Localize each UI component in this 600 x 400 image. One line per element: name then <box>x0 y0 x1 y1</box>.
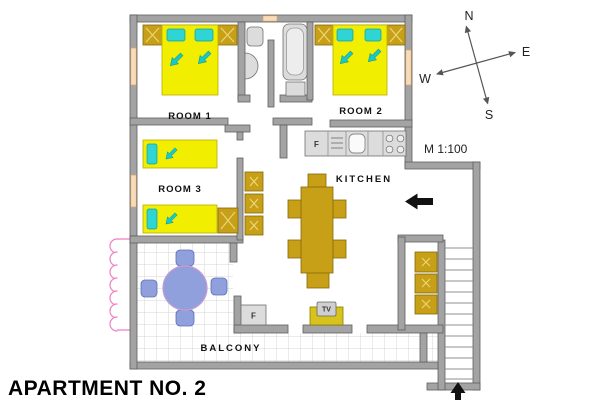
chair <box>288 200 302 218</box>
compass-e-label: E <box>522 45 530 59</box>
washing-machine <box>286 82 305 96</box>
compass-north-tip <box>465 26 471 34</box>
floor-plan-page: F F TV N <box>0 0 600 400</box>
freezer-unit: F <box>241 305 266 325</box>
toilet <box>247 27 263 46</box>
compass-rose: N E S W <box>419 9 530 122</box>
freezer-label: F <box>251 312 256 321</box>
balcony-label: BALCONY <box>201 343 262 354</box>
kitchen-counter: F <box>305 131 406 156</box>
tv-label: TV <box>322 307 331 314</box>
compass-s-label: S <box>485 108 493 122</box>
fridge-label: F <box>314 140 319 149</box>
pillow <box>147 144 157 164</box>
window-left-room3 <box>131 175 136 207</box>
pillow <box>365 29 381 41</box>
room3-label: ROOM 3 <box>158 184 201 195</box>
pillow <box>195 29 213 41</box>
chair <box>307 272 329 288</box>
kitchen-label: KITCHEN <box>336 174 392 185</box>
bathroom-fixtures <box>245 24 307 96</box>
staircase <box>445 248 473 379</box>
dining-table-set <box>288 174 346 288</box>
balcony-chair <box>141 280 157 297</box>
pillow <box>147 209 157 229</box>
scale-label: M 1:100 <box>424 142 468 156</box>
room2-label: ROOM 2 <box>339 106 382 117</box>
window-top-bathroom <box>263 16 277 21</box>
floor-plan: F F TV N <box>0 0 600 400</box>
balcony-chair <box>211 278 227 295</box>
balcony-chair <box>176 250 194 266</box>
entry-cabinets <box>415 252 437 314</box>
room2-double-bed <box>315 25 405 95</box>
chair <box>332 240 346 258</box>
dining-table <box>301 187 333 273</box>
compass-n-label: N <box>464 9 473 23</box>
pillow <box>337 29 353 41</box>
chair <box>332 200 346 218</box>
tv-unit: TV <box>310 302 343 325</box>
balcony-chair <box>176 310 194 326</box>
window-left-room1 <box>131 48 136 85</box>
compass-w-label: W <box>419 72 431 86</box>
balcony-round-table <box>163 266 207 310</box>
chair <box>288 240 302 258</box>
room1-label: ROOM 1 <box>168 111 211 122</box>
compass-south-tip <box>483 97 489 105</box>
hall-wardrobes <box>245 172 263 235</box>
pillow <box>167 29 185 41</box>
entry-arrow-icon <box>405 194 433 210</box>
page-title: APARTMENT NO. 2 <box>8 377 206 400</box>
room1-double-bed <box>143 25 237 95</box>
sink <box>245 53 258 79</box>
kitchen-sink <box>349 134 365 153</box>
window-right-room2 <box>406 50 411 85</box>
